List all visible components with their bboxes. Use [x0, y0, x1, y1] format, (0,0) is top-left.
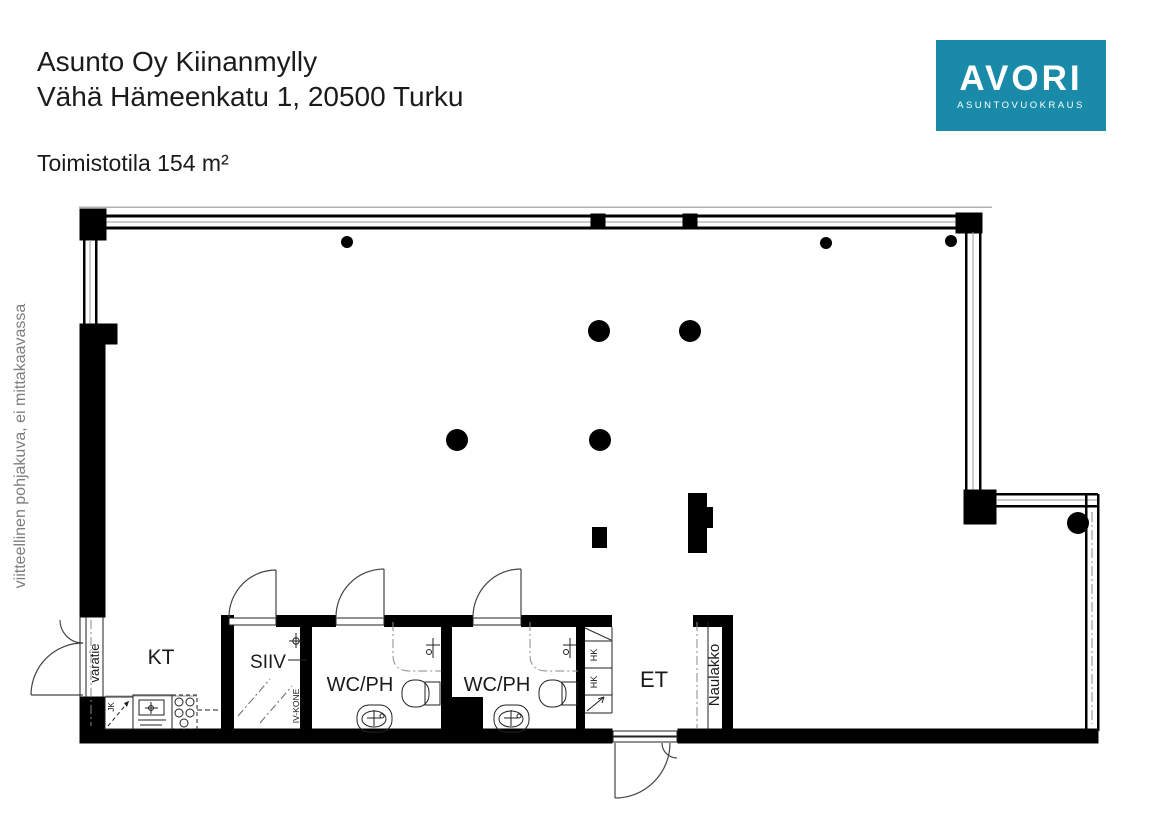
column-dot	[945, 235, 957, 247]
column-dot	[588, 320, 610, 342]
entrance-door	[615, 743, 677, 798]
room-label-wc-left: WC/PH	[327, 674, 394, 696]
room-label-varatie: varatie	[87, 643, 102, 682]
door-frame	[336, 618, 384, 625]
floorplan-sheet: Asunto Oy Kiinanmylly Vähä Hämeenkatu 1,…	[0, 0, 1160, 820]
entrance-threshold	[613, 737, 677, 742]
label-iv-kone: IV-KONE	[291, 688, 301, 723]
label-hk-upper: HK	[589, 649, 599, 662]
door-swing-wc-right	[473, 569, 521, 617]
entrance-threshold	[613, 731, 677, 736]
room-label-et: ET	[640, 667, 668, 692]
plumbing-block	[443, 697, 483, 743]
varatie-exit-door	[31, 620, 83, 695]
door-frame	[473, 618, 521, 625]
shower-faucet-icon	[426, 638, 440, 658]
sink-icon	[357, 705, 392, 732]
window-mullion	[683, 214, 697, 229]
column-dot	[446, 429, 468, 451]
sink-unit	[133, 695, 172, 729]
label-jk: JK	[107, 702, 116, 712]
closet-arrow	[587, 697, 604, 711]
room-label-siiv: SIIV	[250, 652, 286, 673]
column-dot	[679, 320, 701, 342]
column-square	[592, 527, 607, 548]
room-label-naulakko: Naulakko	[706, 644, 723, 707]
floor-plan-drawing: KT SIIV WC/PH WC/PH ET Naulakko varatie …	[0, 0, 1160, 820]
room-label-wc-right: WC/PH	[464, 674, 531, 696]
closet-diagonal	[585, 628, 611, 640]
door-swing-siiv	[229, 570, 276, 617]
stove-reservation	[172, 695, 197, 729]
duct-shaft	[707, 507, 713, 528]
shower-faucet-icon	[563, 638, 577, 658]
column-dot	[589, 429, 611, 451]
room-label-kt: KT	[148, 646, 175, 669]
toilet-icon	[402, 680, 440, 707]
iv-kone-reservation	[238, 679, 292, 723]
et-closets	[585, 627, 612, 713]
window-mullion	[591, 214, 605, 229]
duct-shaft	[688, 493, 707, 553]
door-frame	[229, 618, 276, 625]
column-dot	[1067, 512, 1089, 534]
shower-zone-line	[530, 622, 578, 671]
toilet-icon	[539, 680, 577, 707]
column-dot	[820, 237, 832, 249]
door-swing-wc-left	[336, 569, 384, 617]
fridge-box	[105, 697, 133, 729]
shower-zone-line	[393, 622, 441, 671]
kitchen-fixtures	[105, 695, 221, 729]
label-hk-lower: HK	[589, 676, 599, 689]
column-dot	[341, 236, 353, 248]
sink-icon	[494, 705, 529, 732]
